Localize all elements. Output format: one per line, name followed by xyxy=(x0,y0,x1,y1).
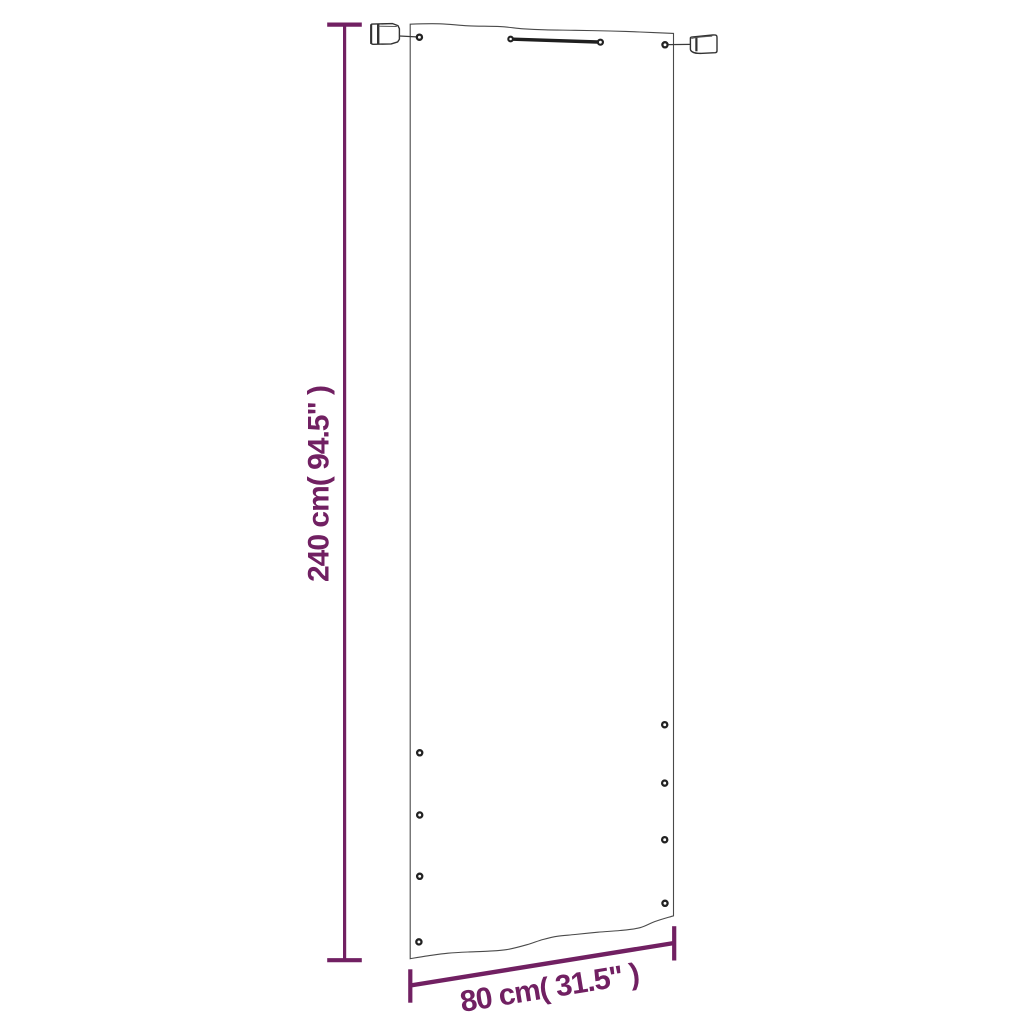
svg-text:240 cm( 94.5" ): 240 cm( 94.5" ) xyxy=(303,386,336,582)
svg-text:80 cm( 31.5" ): 80 cm( 31.5" ) xyxy=(458,958,641,1019)
